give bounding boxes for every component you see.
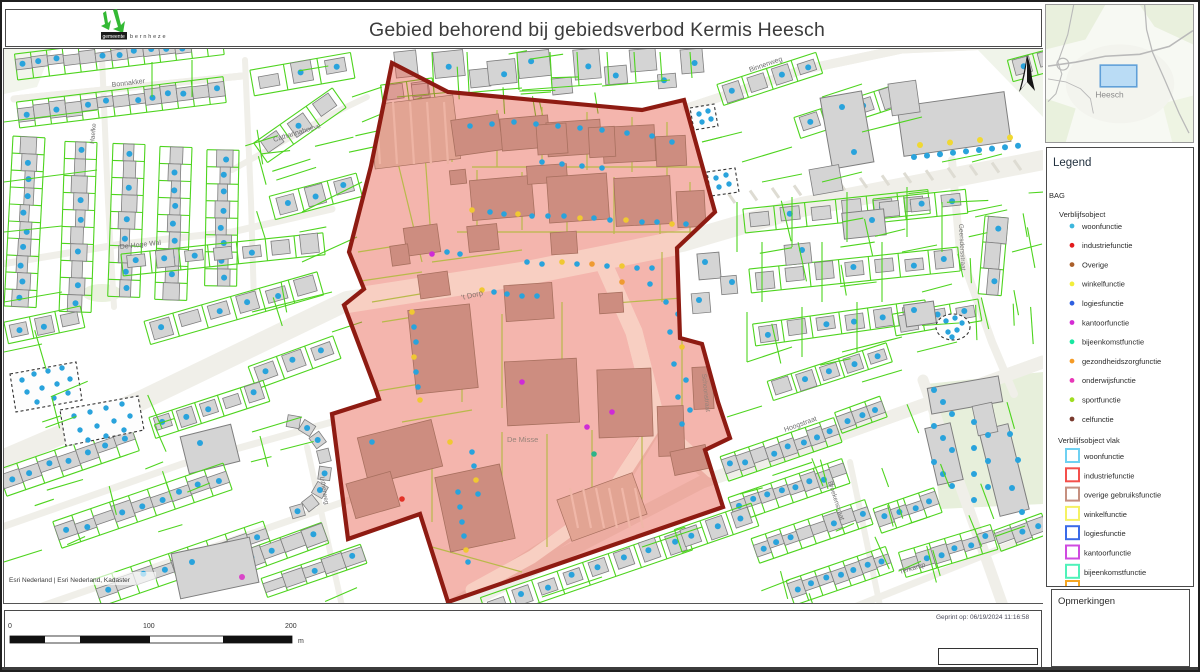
- svg-text:m: m: [298, 638, 304, 645]
- svg-text:De Misse: De Misse: [507, 435, 538, 444]
- svg-text:0: 0: [8, 623, 12, 630]
- svg-text:Heesch: Heesch: [1095, 90, 1124, 100]
- svg-text:100: 100: [143, 623, 155, 630]
- svg-text:200: 200: [285, 623, 297, 630]
- svg-text:Esri Nederland | Esri Nederlan: Esri Nederland | Esri Nederland, Kadaste…: [9, 577, 131, 584]
